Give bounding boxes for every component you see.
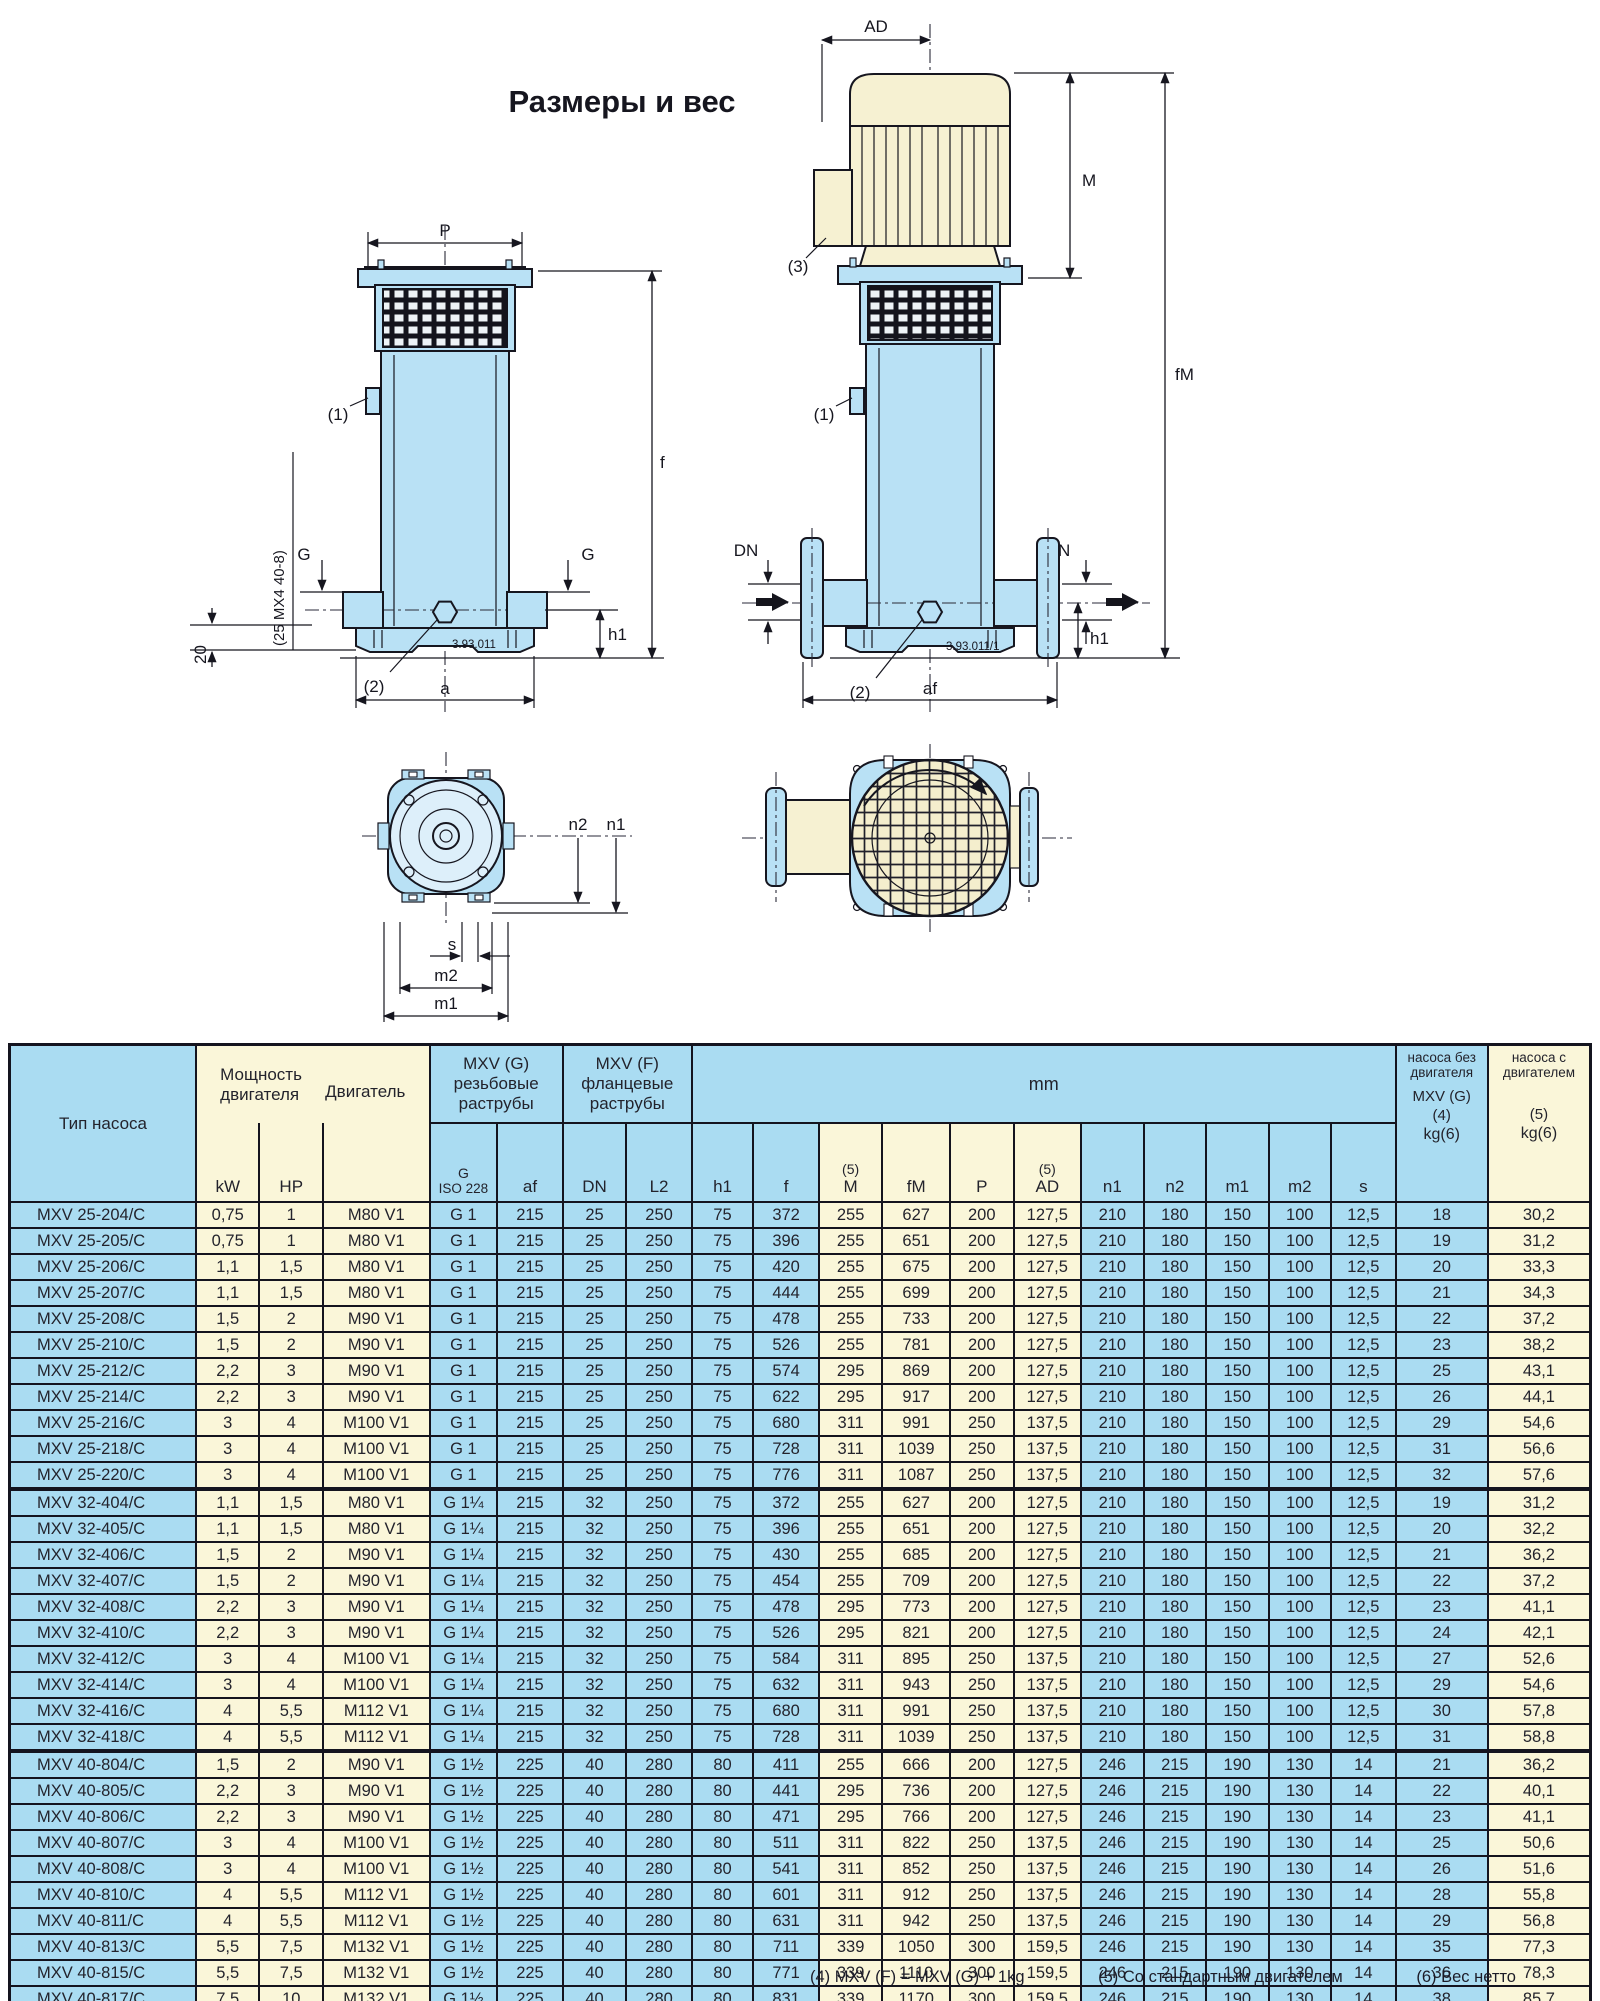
cell-f: 541	[753, 1856, 819, 1882]
unit-n2: n2	[1144, 1123, 1206, 1202]
cell-m1: 150	[1206, 1620, 1268, 1646]
unit-dn: DN	[563, 1123, 627, 1202]
table-row: MXV 25-207/C1,11,5M80 V1G 12152525075444…	[10, 1280, 1591, 1306]
cell-type: MXV 25-208/C	[10, 1306, 196, 1332]
cell-n2: 215	[1144, 1934, 1206, 1960]
cell-kg_with_motor: 30,2	[1488, 1202, 1591, 1228]
cell-n1: 210	[1081, 1646, 1143, 1672]
cell-hp: 4	[259, 1672, 323, 1698]
cell-n2: 180	[1144, 1516, 1206, 1542]
cell-f: 728	[753, 1724, 819, 1751]
cell-type: MXV 25-204/C	[10, 1202, 196, 1228]
cell-kg_with_motor: 31,2	[1488, 1228, 1591, 1254]
cell-hp: 1,5	[259, 1280, 323, 1306]
cell-f: 471	[753, 1804, 819, 1830]
cell-n2: 180	[1144, 1332, 1206, 1358]
cell-s: 12,5	[1331, 1724, 1396, 1751]
cell-s: 12,5	[1331, 1202, 1396, 1228]
cell-l2: 280	[626, 1960, 692, 1986]
table-row: MXV 32-404/C1,11,5M80 V1G 1¼215322507537…	[10, 1489, 1591, 1516]
cell-dn: 32	[563, 1542, 627, 1568]
cell-n1: 246	[1081, 1751, 1143, 1778]
cell-type: MXV 32-414/C	[10, 1672, 196, 1698]
cell-kg_pump_only: 31	[1396, 1724, 1488, 1751]
cell-kw: 2,2	[196, 1384, 260, 1410]
cell-l2: 250	[626, 1672, 692, 1698]
cell-m1: 150	[1206, 1306, 1268, 1332]
cell-n2: 180	[1144, 1698, 1206, 1724]
callout-2-left: (2)	[364, 677, 385, 696]
cell-type: MXV 32-410/C	[10, 1620, 196, 1646]
dim-label-ad: AD	[864, 17, 888, 36]
cell-type: MXV 32-418/C	[10, 1724, 196, 1751]
cell-motor: M80 V1	[323, 1516, 430, 1542]
cell-m: 311	[819, 1830, 883, 1856]
cell-motor: M100 V1	[323, 1410, 430, 1436]
cell-f: 680	[753, 1410, 819, 1436]
cell-dn: 32	[563, 1594, 627, 1620]
header-pump-type: Тип насоса	[10, 1045, 196, 1203]
cell-ad: 127,5	[1014, 1202, 1082, 1228]
cell-n1: 210	[1081, 1306, 1143, 1332]
cell-g_iso228: G 1½	[430, 1960, 498, 1986]
cell-m2: 100	[1269, 1384, 1331, 1410]
cell-f: 574	[753, 1358, 819, 1384]
cell-type: MXV 25-205/C	[10, 1228, 196, 1254]
cell-hp: 4	[259, 1646, 323, 1672]
cell-type: MXV 40-817/C	[10, 1986, 196, 2001]
cell-af: 215	[497, 1724, 563, 1751]
cell-af: 215	[497, 1228, 563, 1254]
cell-af: 215	[497, 1698, 563, 1724]
cell-m: 311	[819, 1856, 883, 1882]
cell-p: 200	[950, 1280, 1014, 1306]
cell-kw: 4	[196, 1882, 260, 1908]
cell-m: 255	[819, 1751, 883, 1778]
cell-p: 200	[950, 1254, 1014, 1280]
cell-kg_pump_only: 22	[1396, 1778, 1488, 1804]
cell-n2: 180	[1144, 1306, 1206, 1332]
unit-f: f	[753, 1123, 819, 1202]
unit-s: s	[1331, 1123, 1396, 1202]
dim-label-s: s	[448, 935, 457, 954]
weight2-unit: kg(6)	[1489, 1125, 1589, 1143]
cell-m2: 130	[1269, 1986, 1331, 2001]
cell-fm: 766	[882, 1804, 950, 1830]
cell-p: 250	[950, 1908, 1014, 1934]
cell-l2: 250	[626, 1254, 692, 1280]
cell-f: 632	[753, 1672, 819, 1698]
cell-s: 12,5	[1331, 1462, 1396, 1489]
cell-h1: 80	[692, 1934, 753, 1960]
table-row: MXV 25-216/C34M100 V1G 12152525075680311…	[10, 1410, 1591, 1436]
cell-m1: 190	[1206, 1856, 1268, 1882]
cell-dn: 25	[563, 1358, 627, 1384]
cell-m: 255	[819, 1202, 883, 1228]
cell-fm: 781	[882, 1332, 950, 1358]
cell-fm: 651	[882, 1228, 950, 1254]
terminal-box	[814, 170, 852, 246]
cell-kw: 1,1	[196, 1489, 260, 1516]
cell-dn: 25	[563, 1384, 627, 1410]
cell-l2: 280	[626, 1778, 692, 1804]
cell-n2: 180	[1144, 1724, 1206, 1751]
cell-af: 215	[497, 1516, 563, 1542]
cell-hp: 1	[259, 1202, 323, 1228]
cell-g_iso228: G 1¼	[430, 1516, 498, 1542]
cell-motor: M100 V1	[323, 1436, 430, 1462]
cell-n2: 215	[1144, 1804, 1206, 1830]
cell-g_iso228: G 1¼	[430, 1672, 498, 1698]
cell-hp: 2	[259, 1542, 323, 1568]
cell-s: 12,5	[1331, 1646, 1396, 1672]
cell-kw: 5,5	[196, 1960, 260, 1986]
cell-kg_pump_only: 32	[1396, 1462, 1488, 1489]
cell-af: 225	[497, 1778, 563, 1804]
cell-ad: 127,5	[1014, 1280, 1082, 1306]
cell-m1: 150	[1206, 1254, 1268, 1280]
cell-g_iso228: G 1	[430, 1254, 498, 1280]
weight1-series: MXV (G)	[1397, 1088, 1487, 1105]
group-mxv-25: MXV 25-204/C0,751M80 V1G 121525250753722…	[10, 1202, 1591, 1489]
cell-m: 255	[819, 1254, 883, 1280]
cell-motor: M90 V1	[323, 1358, 430, 1384]
cell-af: 215	[497, 1436, 563, 1462]
cell-f: 430	[753, 1542, 819, 1568]
cell-m: 311	[819, 1882, 883, 1908]
dim-label-fm: fM	[1175, 365, 1194, 384]
cell-s: 14	[1331, 1934, 1396, 1960]
cell-kg_with_motor: 34,3	[1488, 1280, 1591, 1306]
cell-hp: 1,5	[259, 1254, 323, 1280]
cell-fm: 869	[882, 1358, 950, 1384]
cell-l2: 250	[626, 1410, 692, 1436]
cell-s: 12,5	[1331, 1672, 1396, 1698]
cell-f: 396	[753, 1228, 819, 1254]
table-row: MXV 32-406/C1,52M90 V1G 1¼21532250754302…	[10, 1542, 1591, 1568]
cell-type: MXV 40-807/C	[10, 1830, 196, 1856]
table-row: MXV 32-418/C45,5M112 V1G 1¼2153225075728…	[10, 1724, 1591, 1751]
dim-label-m2: m2	[434, 966, 458, 985]
cell-fm: 685	[882, 1542, 950, 1568]
cell-n2: 180	[1144, 1280, 1206, 1306]
cell-f: 601	[753, 1882, 819, 1908]
cell-kg_pump_only: 25	[1396, 1830, 1488, 1856]
unit-ad: (5)AD	[1014, 1123, 1082, 1202]
cell-s: 14	[1331, 1751, 1396, 1778]
cell-g_iso228: G 1¼	[430, 1594, 498, 1620]
cell-m: 255	[819, 1332, 883, 1358]
cell-kg_with_motor: 52,6	[1488, 1646, 1591, 1672]
cell-p: 250	[950, 1410, 1014, 1436]
cell-m1: 190	[1206, 1804, 1268, 1830]
cell-af: 215	[497, 1332, 563, 1358]
cell-ad: 127,5	[1014, 1594, 1082, 1620]
cell-hp: 1	[259, 1228, 323, 1254]
cell-f: 441	[753, 1778, 819, 1804]
header-motor-power: Мощность двигателя	[220, 1065, 302, 1105]
cell-motor: M112 V1	[323, 1882, 430, 1908]
header-mxv-g: MXV (G) резьбовые раструбы	[430, 1045, 563, 1124]
cell-kw: 4	[196, 1908, 260, 1934]
cell-m1: 150	[1206, 1462, 1268, 1489]
cell-kg_with_motor: 54,6	[1488, 1410, 1591, 1436]
dim-label-20: 20	[191, 645, 210, 664]
cell-kg_with_motor: 41,1	[1488, 1594, 1591, 1620]
header-power-motor: Мощность двигателя Двигатель	[196, 1045, 430, 1124]
cell-n2: 215	[1144, 1751, 1206, 1778]
cell-fm: 627	[882, 1202, 950, 1228]
units-row: kWHPGISO 228afDNL2h1f(5)MfMP(5)ADn1n2m1m…	[10, 1123, 1591, 1202]
cell-h1: 80	[692, 1830, 753, 1856]
flow-arrow-out	[1106, 593, 1139, 611]
cell-m: 311	[819, 1698, 883, 1724]
cell-type: MXV 25-210/C	[10, 1332, 196, 1358]
cell-dn: 25	[563, 1254, 627, 1280]
cell-dn: 25	[563, 1280, 627, 1306]
cell-motor: M80 V1	[323, 1254, 430, 1280]
cell-s: 12,5	[1331, 1620, 1396, 1646]
table-row: MXV 32-412/C34M100 V1G 1¼215322507558431…	[10, 1646, 1591, 1672]
unit-l2: L2	[626, 1123, 692, 1202]
dimensions-table: Тип насоса Мощность двигателя Двигатель …	[8, 1043, 1592, 2001]
cell-dn: 25	[563, 1332, 627, 1358]
cell-m2: 130	[1269, 1908, 1331, 1934]
cell-kw: 1,5	[196, 1332, 260, 1358]
cell-m: 255	[819, 1280, 883, 1306]
cell-ad: 127,5	[1014, 1620, 1082, 1646]
cell-fm: 709	[882, 1568, 950, 1594]
dim-label-n2: n2	[569, 815, 588, 834]
weight1-note: (4)	[1397, 1107, 1487, 1124]
table-row: MXV 32-408/C2,23M90 V1G 1¼21532250754782…	[10, 1594, 1591, 1620]
cell-fm: 773	[882, 1594, 950, 1620]
cell-fm: 1170	[882, 1986, 950, 2001]
cell-h1: 80	[692, 1778, 753, 1804]
cell-ad: 127,5	[1014, 1489, 1082, 1516]
cell-f: 411	[753, 1751, 819, 1778]
motor-cap	[850, 74, 1010, 126]
table-row: MXV 25-220/C34M100 V1G 12152525075776311…	[10, 1462, 1591, 1489]
cell-m1: 150	[1206, 1332, 1268, 1358]
cell-s: 12,5	[1331, 1384, 1396, 1410]
cell-kw: 5,5	[196, 1934, 260, 1960]
cell-l2: 250	[626, 1384, 692, 1410]
cell-hp: 4	[259, 1462, 323, 1489]
cell-f: 444	[753, 1280, 819, 1306]
cell-h1: 75	[692, 1410, 753, 1436]
cell-motor: M100 V1	[323, 1462, 430, 1489]
cell-hp: 2	[259, 1306, 323, 1332]
cell-m1: 190	[1206, 1882, 1268, 1908]
header-motor: Двигатель	[325, 1082, 405, 1102]
cell-ad: 137,5	[1014, 1672, 1082, 1698]
cell-kg_pump_only: 24	[1396, 1620, 1488, 1646]
table-row: MXV 40-810/C45,5M112 V1G 1½2254028080601…	[10, 1882, 1591, 1908]
cell-h1: 80	[692, 1960, 753, 1986]
cell-n1: 210	[1081, 1568, 1143, 1594]
cell-type: MXV 40-808/C	[10, 1856, 196, 1882]
unit-p: P	[950, 1123, 1014, 1202]
cell-m: 311	[819, 1462, 883, 1489]
cell-h1: 75	[692, 1202, 753, 1228]
cell-fm: 675	[882, 1254, 950, 1280]
cell-l2: 250	[626, 1280, 692, 1306]
cell-m2: 130	[1269, 1804, 1331, 1830]
cell-type: MXV 25-212/C	[10, 1358, 196, 1384]
cell-p: 200	[950, 1568, 1014, 1594]
cell-type: MXV 32-404/C	[10, 1489, 196, 1516]
cell-type: MXV 25-214/C	[10, 1384, 196, 1410]
cell-n1: 210	[1081, 1358, 1143, 1384]
cell-ad: 159,5	[1014, 1986, 1082, 2001]
cell-h1: 75	[692, 1568, 753, 1594]
cell-af: 215	[497, 1594, 563, 1620]
cell-p: 300	[950, 1986, 1014, 2001]
cell-m2: 100	[1269, 1306, 1331, 1332]
cell-ad: 127,5	[1014, 1568, 1082, 1594]
cell-n2: 180	[1144, 1384, 1206, 1410]
cell-m2: 100	[1269, 1542, 1331, 1568]
cell-n2: 215	[1144, 1856, 1206, 1882]
cell-fm: 1087	[882, 1462, 950, 1489]
cell-kw: 0,75	[196, 1202, 260, 1228]
cell-dn: 25	[563, 1462, 627, 1489]
table-row: MXV 25-205/C0,751M80 V1G 121525250753962…	[10, 1228, 1591, 1254]
weight2-caption: насоса с двигателем	[1489, 1050, 1589, 1080]
cell-ad: 127,5	[1014, 1306, 1082, 1332]
cell-hp: 3	[259, 1594, 323, 1620]
cell-m1: 190	[1206, 1934, 1268, 1960]
cell-l2: 280	[626, 1934, 692, 1960]
cell-kw: 3	[196, 1672, 260, 1698]
callout-1-right: (1)	[814, 405, 835, 424]
cell-p: 250	[950, 1462, 1014, 1489]
cell-l2: 280	[626, 1986, 692, 2001]
cell-kg_with_motor: 50,6	[1488, 1830, 1591, 1856]
cell-n1: 210	[1081, 1594, 1143, 1620]
cell-hp: 3	[259, 1778, 323, 1804]
cell-n1: 210	[1081, 1384, 1143, 1410]
cell-af: 215	[497, 1672, 563, 1698]
cell-f: 584	[753, 1646, 819, 1672]
cell-h1: 80	[692, 1986, 753, 2001]
dim-label-a: a	[440, 679, 450, 698]
cell-h1: 75	[692, 1254, 753, 1280]
cell-fm: 852	[882, 1856, 950, 1882]
cell-n1: 246	[1081, 1882, 1143, 1908]
cell-s: 14	[1331, 1856, 1396, 1882]
cell-h1: 75	[692, 1436, 753, 1462]
cell-p: 200	[950, 1516, 1014, 1542]
cell-l2: 250	[626, 1202, 692, 1228]
cell-l2: 250	[626, 1228, 692, 1254]
cell-af: 215	[497, 1489, 563, 1516]
cell-dn: 25	[563, 1410, 627, 1436]
cell-motor: M80 V1	[323, 1280, 430, 1306]
dim-label-m: M	[1082, 171, 1096, 190]
cell-m2: 100	[1269, 1516, 1331, 1542]
cell-af: 225	[497, 1882, 563, 1908]
cell-dn: 25	[563, 1306, 627, 1332]
cell-type: MXV 32-407/C	[10, 1568, 196, 1594]
cell-motor: M90 V1	[323, 1594, 430, 1620]
cell-kg_with_motor: 40,1	[1488, 1778, 1591, 1804]
cell-n1: 246	[1081, 1804, 1143, 1830]
cell-p: 250	[950, 1672, 1014, 1698]
drawing-threaded-pump: P (1) (25 MX4 40-8) 20 G G	[190, 221, 665, 712]
cell-type: MXV 32-412/C	[10, 1646, 196, 1672]
cell-fm: 627	[882, 1489, 950, 1516]
cell-dn: 40	[563, 1908, 627, 1934]
cell-h1: 75	[692, 1462, 753, 1489]
table-row: MXV 40-807/C34M100 V1G 1½225402808051131…	[10, 1830, 1591, 1856]
cell-kw: 1,5	[196, 1542, 260, 1568]
cell-g_iso228: G 1¼	[430, 1568, 498, 1594]
cell-f: 396	[753, 1516, 819, 1542]
cell-ad: 137,5	[1014, 1856, 1082, 1882]
cell-kg_with_motor: 36,2	[1488, 1542, 1591, 1568]
cell-kw: 3	[196, 1436, 260, 1462]
cell-ad: 127,5	[1014, 1516, 1082, 1542]
cell-m2: 130	[1269, 1882, 1331, 1908]
cell-kg_pump_only: 21	[1396, 1751, 1488, 1778]
dim-label-g-left: G	[297, 545, 310, 564]
cell-motor: M132 V1	[323, 1960, 430, 1986]
cell-m2: 100	[1269, 1646, 1331, 1672]
cell-af: 225	[497, 1934, 563, 1960]
cell-hp: 2	[259, 1332, 323, 1358]
cell-ad: 137,5	[1014, 1908, 1082, 1934]
cell-type: MXV 40-804/C	[10, 1751, 196, 1778]
cell-h1: 75	[692, 1358, 753, 1384]
cell-l2: 280	[626, 1908, 692, 1934]
cell-kw: 2,2	[196, 1620, 260, 1646]
cell-m: 255	[819, 1568, 883, 1594]
unit-fm: fM	[882, 1123, 950, 1202]
cell-n2: 180	[1144, 1228, 1206, 1254]
table-row: MXV 25-208/C1,52M90 V1G 1215252507547825…	[10, 1306, 1591, 1332]
cell-kw: 1,5	[196, 1306, 260, 1332]
cell-l2: 280	[626, 1830, 692, 1856]
cell-ad: 127,5	[1014, 1358, 1082, 1384]
drawing-flanged-pump: AD (3) M (1)	[734, 17, 1194, 712]
cell-m2: 100	[1269, 1436, 1331, 1462]
cell-m1: 150	[1206, 1672, 1268, 1698]
cell-ad: 137,5	[1014, 1698, 1082, 1724]
cell-dn: 40	[563, 1778, 627, 1804]
cell-m1: 150	[1206, 1436, 1268, 1462]
cell-n1: 210	[1081, 1436, 1143, 1462]
cell-ad: 127,5	[1014, 1751, 1082, 1778]
cell-f: 631	[753, 1908, 819, 1934]
cell-p: 250	[950, 1646, 1014, 1672]
cell-ad: 127,5	[1014, 1254, 1082, 1280]
cell-h1: 75	[692, 1516, 753, 1542]
dim-label-n1: n1	[607, 815, 626, 834]
cell-kg_with_motor: 32,2	[1488, 1516, 1591, 1542]
cell-g_iso228: G 1	[430, 1306, 498, 1332]
cell-m2: 130	[1269, 1856, 1331, 1882]
cell-fm: 736	[882, 1778, 950, 1804]
cell-motor: M90 V1	[323, 1384, 430, 1410]
cell-hp: 4	[259, 1830, 323, 1856]
cell-af: 225	[497, 1751, 563, 1778]
cell-l2: 250	[626, 1594, 692, 1620]
cell-n1: 246	[1081, 1934, 1143, 1960]
cell-kw: 1,1	[196, 1254, 260, 1280]
cell-dn: 32	[563, 1489, 627, 1516]
